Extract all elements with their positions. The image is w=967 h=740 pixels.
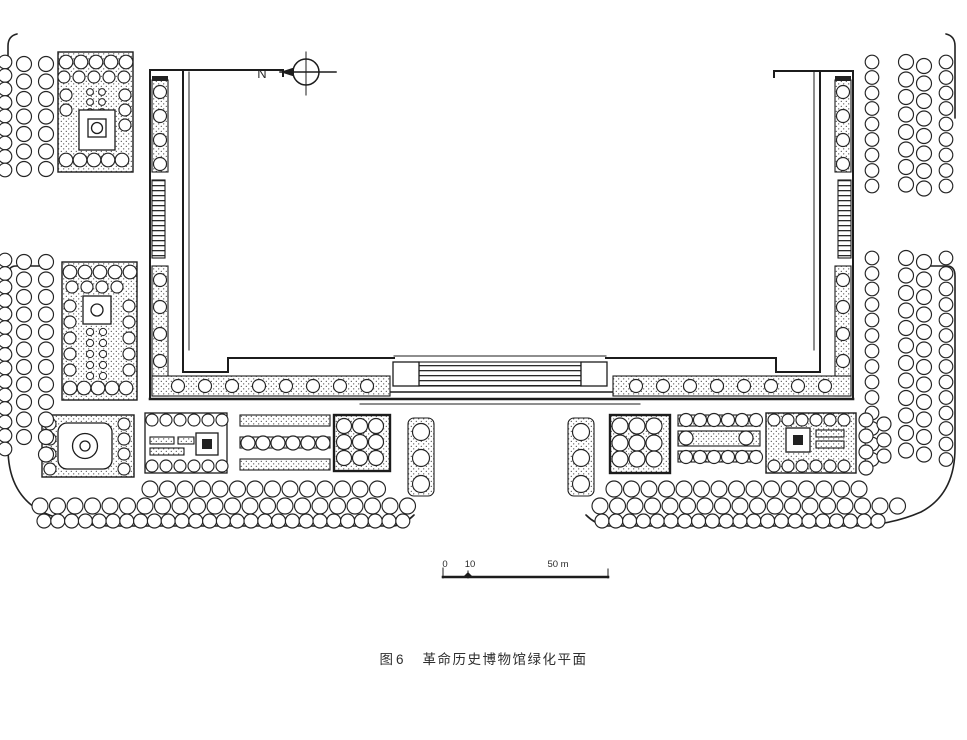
garden-plot-top-left (58, 52, 133, 172)
strip-trees (573, 424, 590, 493)
scale-tick-10: 10 (465, 559, 476, 570)
tree-rows-bottom-right (592, 481, 906, 528)
steps-end-block-right (581, 362, 607, 386)
inner-wall-left (183, 70, 394, 372)
tree-column (917, 59, 932, 197)
plot-trees (337, 419, 384, 434)
tree-columns-left-top (0, 55, 53, 177)
axis-strip-left (408, 418, 434, 496)
north-compass: N (257, 52, 336, 95)
plot-trees (612, 435, 662, 451)
scale-tick-50: 50 m (547, 559, 568, 570)
scanned-figure-page: N (0, 0, 967, 740)
tree-column (877, 417, 891, 463)
plot-trees (119, 89, 131, 131)
north-label: N (257, 66, 266, 81)
tree-column (939, 55, 953, 193)
steps-run (419, 362, 581, 386)
tree-row (32, 498, 416, 514)
plot-trees (337, 435, 384, 450)
tree-row (595, 514, 885, 528)
axis-strip-right (568, 418, 594, 496)
plot-trees (612, 451, 662, 467)
planting-strip-left-wing (152, 76, 168, 396)
tree-columns-left-mid (0, 253, 53, 462)
garden-plot-mid-left (62, 262, 137, 400)
plot-trees (612, 418, 662, 434)
inner-wall-right (606, 71, 820, 372)
tree-column (17, 57, 32, 177)
pavilion (202, 439, 212, 449)
planting-strip-right-wing (835, 76, 851, 396)
plot-trees (63, 265, 137, 279)
tree-row (592, 498, 906, 514)
scale-tick-0: 0 (442, 559, 447, 570)
site-plan-svg: N (0, 0, 967, 740)
planting-strip-bottom-left (152, 376, 390, 396)
tree-column (899, 55, 914, 193)
plot-trees (58, 71, 130, 83)
tree-column (17, 255, 32, 445)
tree-column (0, 253, 12, 456)
figure-number: 图6 (379, 652, 406, 667)
stair-strip-left (152, 180, 165, 258)
parterre-1 (42, 415, 134, 477)
entrance-steps (393, 362, 607, 386)
tree-column (899, 251, 914, 459)
stair-strip-right (838, 180, 851, 258)
tree-column (39, 255, 54, 463)
figure-title: 革命历史博物馆绿化平面 (423, 652, 588, 667)
parterre-4 (334, 415, 390, 471)
building-outline (150, 70, 853, 404)
steps-end-block-left (393, 362, 419, 386)
figure-caption: 图6革命历史博物馆绿化平面 (0, 648, 967, 668)
plot-trees (63, 381, 133, 395)
center-tree (92, 123, 103, 134)
pavilion (793, 435, 803, 445)
center-tree (91, 304, 103, 316)
tree-column (0, 55, 12, 177)
plot-trees (59, 55, 133, 69)
tree-row (606, 481, 867, 497)
tree-row (142, 481, 386, 497)
parterre-6 (678, 414, 763, 464)
parterre-5 (610, 415, 670, 473)
tree-column (917, 255, 932, 463)
parterre-7 (766, 413, 856, 473)
tree-columns-right-mid (859, 251, 953, 476)
parterre-3 (240, 415, 330, 470)
strip-trees (413, 424, 430, 493)
tree-rows-bottom-left (32, 481, 416, 528)
tree-column (39, 57, 54, 177)
plot-trees (59, 153, 129, 167)
center-tree-core (80, 441, 90, 451)
scale-bar: 0 10 50 m (442, 559, 608, 578)
tree-column (939, 251, 953, 466)
plot-trees (337, 451, 384, 466)
tree-columns-right-top (865, 55, 953, 197)
parterre-2 (145, 413, 228, 473)
tree-column (865, 55, 879, 193)
planting-strip-bottom-right (613, 376, 851, 396)
